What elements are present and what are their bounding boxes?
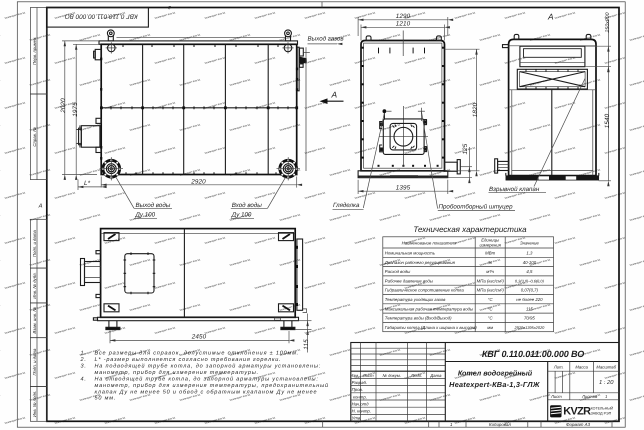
svg-text:2920х1395х2020: 2920х1395х2020	[513, 325, 545, 330]
svg-text:Все размеры для справок, допус: Все размеры для справок, допустимые откл…	[95, 351, 300, 357]
svg-text:А: А	[547, 12, 554, 22]
svg-text:2: 2	[168, 5, 172, 10]
svg-text:115: 115	[303, 339, 310, 350]
svg-text:2.: 2.	[80, 357, 87, 363]
svg-text:1: 1	[605, 394, 607, 399]
svg-text:м³/ч: м³/ч	[486, 269, 495, 274]
svg-text:Листов: Листов	[581, 394, 598, 399]
svg-text:Подп. и дата: Подп. и дата	[32, 230, 37, 258]
svg-text:мм: мм	[487, 325, 493, 330]
svg-text:1820: 1820	[472, 102, 479, 117]
svg-text:0,3(3,0)–0,6(6,0): 0,3(3,0)–0,6(6,0)	[515, 278, 545, 283]
svg-text:Справ. №: Справ. №	[32, 127, 37, 147]
svg-text:Подп. и дата: Подп. и дата	[32, 348, 37, 376]
svg-text:Пробоотборный штуцер: Пробоотборный штуцер	[439, 203, 514, 210]
svg-text:ЗАВОД РЭП: ЗАВОД РЭП	[591, 411, 612, 415]
svg-text:Диапазон рабочего регулировани: Диапазон рабочего регулирования	[384, 260, 456, 265]
svg-text:Габариты котла (Длина х ширина: Габариты котла (Длина х ширина х высота)	[385, 325, 477, 330]
svg-text:не более 220: не более 220	[516, 297, 543, 302]
svg-text:2920: 2920	[190, 179, 206, 186]
svg-text:Формат А3: Формат А3	[566, 422, 591, 427]
svg-text:1395: 1395	[396, 184, 411, 191]
svg-text:Котел водогрейный: Котел водогрейный	[458, 368, 533, 377]
svg-text:1290: 1290	[396, 13, 411, 20]
svg-text:Изм.: Изм.	[350, 373, 359, 378]
svg-text:Дата: Дата	[429, 373, 442, 378]
svg-text:манометр, прибор для измерения: манометр, прибор для измерения температу…	[95, 382, 329, 389]
svg-text:Температура уходящих газов: Температура уходящих газов	[385, 297, 446, 302]
svg-text:%: %	[488, 260, 492, 265]
svg-text:Ду 100: Ду 100	[231, 212, 252, 219]
svg-text:Гляделка: Гляделка	[333, 202, 360, 209]
svg-text:1.: 1.	[81, 351, 87, 357]
svg-text:КВГ 0.110.011.00.000 ВО: КВГ 0.110.011.00.000 ВО	[482, 349, 584, 359]
svg-text:1540: 1540	[604, 113, 611, 128]
svg-text:Взам. инв. №: Взам. инв. №	[32, 307, 37, 334]
svg-text:измерения: измерения	[479, 242, 501, 247]
svg-text:Подп.: Подп.	[411, 373, 422, 378]
svg-text:Копировал: Копировал	[489, 422, 511, 427]
svg-text:Температура воды (Вход/Выход): Температура воды (Вход/Выход)	[385, 316, 452, 321]
svg-text:3.: 3.	[81, 364, 87, 370]
svg-text:Лит.: Лит.	[553, 364, 564, 369]
svg-text:На отводящей трубе котла, до з: На отводящей трубе котла, до запорной ар…	[95, 376, 319, 383]
svg-text:4,5: 4,5	[526, 269, 533, 274]
svg-text:115: 115	[526, 306, 533, 311]
svg-text:Пров.: Пров.	[352, 387, 363, 392]
svg-text:Наименование показателя: Наименование показателя	[402, 240, 458, 245]
svg-text:клапан Ду не менее 50 и обвод: клапан Ду не менее 50 и обвод с обратным…	[95, 388, 318, 395]
svg-text:250х800: 250х800	[605, 12, 611, 33]
svg-text:40-100: 40-100	[523, 260, 537, 265]
svg-text:Номинальная мощность: Номинальная мощность	[385, 251, 436, 256]
svg-text:Инв. № подл.: Инв. № подл.	[32, 391, 37, 418]
svg-text:Heatexpert-КВа-1,3-ГЛЖ: Heatexpert-КВа-1,3-ГЛЖ	[449, 380, 541, 389]
svg-text:Гидравлическое сопротивление к: Гидравлическое сопротивление котла	[385, 288, 465, 293]
svg-text:Масса: Масса	[575, 364, 588, 369]
svg-text:50 мм.: 50 мм.	[95, 396, 117, 402]
svg-text:МПа (кгс/см²): МПа (кгс/см²)	[477, 278, 505, 283]
svg-text:Расход воды: Расход воды	[385, 269, 411, 274]
svg-text:1 : 20: 1 : 20	[599, 379, 614, 386]
svg-text:0,07(0,7): 0,07(0,7)	[521, 288, 539, 293]
svg-text:Перв. примен.: Перв. примен.	[32, 36, 37, 65]
svg-text:Техническая характеристика: Техническая характеристика	[413, 225, 527, 234]
svg-text:Ду 100: Ду 100	[135, 212, 156, 219]
svg-text:1975: 1975	[72, 102, 79, 117]
svg-text:Значение: Значение	[520, 240, 539, 245]
svg-text:А: А	[331, 90, 338, 100]
svg-text:Инв. № дубл.: Инв. № дубл.	[32, 272, 37, 298]
svg-text:На подводящей трубе котла, до: На подводящей трубе котла, до запорной а…	[95, 363, 322, 370]
svg-text:L*: L*	[84, 180, 91, 187]
svg-text:манометр, прибор для измерения: манометр, прибор для измерения температу…	[95, 369, 260, 376]
svg-text:Выход газов: Выход газов	[308, 36, 345, 43]
svg-text:КОТЕЛЬНЫЙ: КОТЕЛЬНЫЙ	[591, 405, 614, 410]
svg-text:L* -размер выполняется согласн: L* -размер выполняется согласно требован…	[95, 356, 282, 363]
svg-text:МПа (кгс/см²): МПа (кгс/см²)	[477, 288, 505, 293]
svg-text:Максимальная рабочая температу: Максимальная рабочая температура воды	[385, 306, 474, 311]
svg-text:контр.: контр.	[353, 394, 367, 399]
svg-text:2450: 2450	[191, 333, 207, 340]
svg-text:1210: 1210	[396, 21, 411, 28]
svg-text:1,3: 1,3	[526, 251, 533, 256]
svg-text:4.: 4.	[81, 377, 87, 383]
svg-text:Утв.: Утв.	[352, 416, 362, 421]
svg-text:KVZR: KVZR	[563, 406, 591, 418]
svg-text:№ докум.: № докум.	[382, 373, 400, 378]
svg-text:МВт: МВт	[485, 251, 495, 256]
svg-text:70/95: 70/95	[524, 316, 535, 321]
svg-text:Взрывной клапан: Взрывной клапан	[489, 186, 540, 193]
svg-text:КВГ 0.110.011.00.000 ВО: КВГ 0.110.011.00.000 ВО	[65, 13, 138, 20]
svg-text:Лист: Лист	[362, 373, 374, 378]
svg-text:Н. контр.: Н. контр.	[352, 409, 371, 414]
svg-text:Масштаб: Масштаб	[596, 364, 616, 369]
svg-text:Рабочее давление воды: Рабочее давление воды	[385, 278, 434, 283]
svg-text:Нач.отд: Нач.отд	[352, 402, 370, 407]
svg-text:Разраб.: Разраб.	[352, 380, 368, 385]
svg-text:А: А	[38, 203, 43, 209]
svg-text:2020: 2020	[60, 98, 67, 114]
svg-text:Лист: Лист	[550, 394, 562, 399]
svg-text:125: 125	[462, 143, 469, 154]
